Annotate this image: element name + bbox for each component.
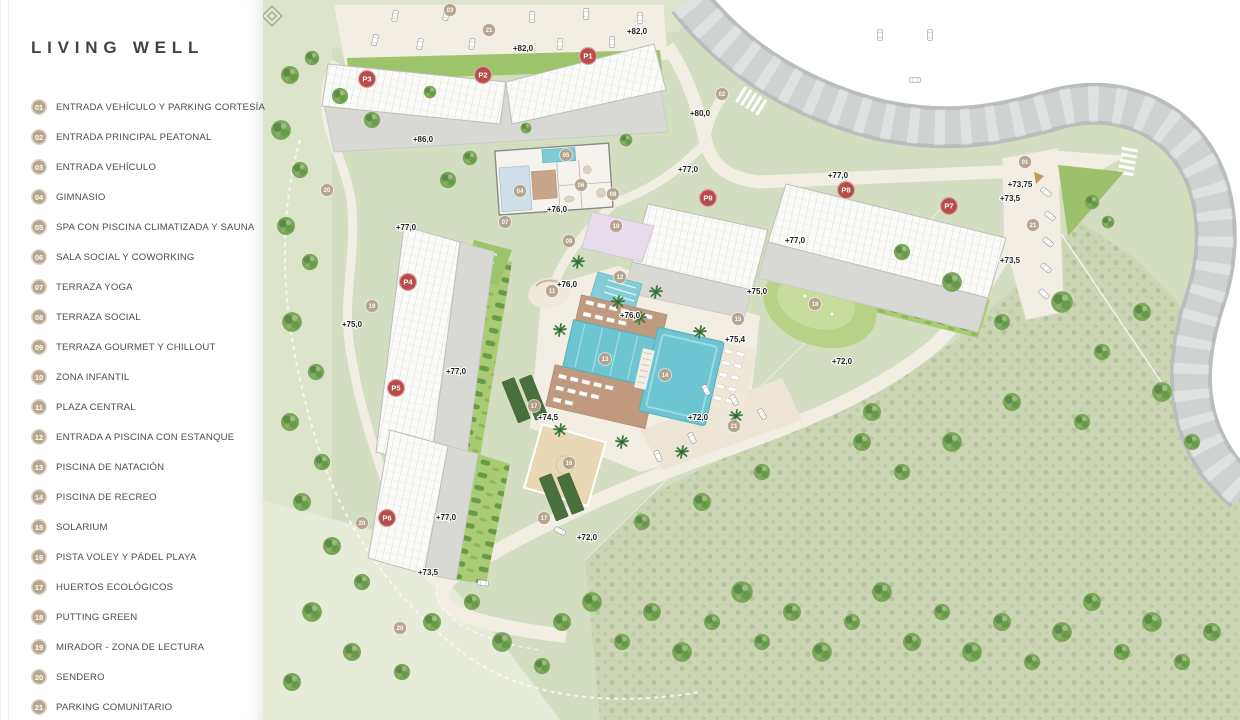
tree-icon [894, 244, 910, 260]
tree-icon [582, 592, 602, 612]
elevation-label: +72,0 [577, 533, 598, 542]
building-marker-P1: P1 [580, 48, 597, 65]
svg-text:13: 13 [602, 357, 609, 363]
svg-text:P4: P4 [403, 278, 413, 287]
elevation-label: +73,5 [418, 568, 439, 577]
elevation-label: +82,0 [627, 27, 648, 36]
car-icon [637, 13, 642, 24]
svg-text:18: 18 [812, 302, 819, 308]
svg-text:P6: P6 [382, 514, 391, 523]
legend-item-number: 02 [31, 129, 47, 145]
svg-text:17: 17 [531, 404, 538, 410]
legend-item: 01ENTRADA VEHÍCULO Y PARKING CORTESÍA [31, 92, 265, 122]
tree-icon [812, 642, 832, 662]
elevation-label: +80,0 [690, 109, 711, 118]
elevation-label: +77,0 [678, 165, 699, 174]
poi-marker-21: 21 [728, 420, 741, 433]
svg-text:03: 03 [447, 8, 454, 14]
poi-marker-16: 16 [563, 457, 576, 470]
legend-item-number: 12 [31, 429, 47, 445]
legend-item: 16PISTA VOLEY Y PÁDEL PLAYA [31, 542, 265, 572]
legend-item-number: 13 [31, 459, 47, 475]
tree-icon [293, 493, 311, 511]
poi-marker-20: 20 [356, 517, 369, 530]
elevation-label: +77,0 [396, 223, 417, 232]
svg-text:19: 19 [369, 304, 376, 310]
tree-icon [853, 433, 871, 451]
legend-item: 02ENTRADA PRINCIPAL PEATONAL [31, 122, 265, 152]
poi-marker-14: 14 [659, 369, 672, 382]
poi-marker-20: 20 [321, 184, 334, 197]
elevation-label: +77,0 [828, 171, 849, 180]
legend-item-number: 18 [31, 609, 47, 625]
svg-text:20: 20 [359, 521, 366, 527]
car-icon [557, 38, 563, 49]
svg-text:07: 07 [502, 220, 509, 226]
poi-marker-18: 18 [809, 298, 822, 311]
tree-icon [693, 493, 711, 511]
tree-icon [308, 364, 324, 380]
tree-icon [903, 633, 921, 651]
poi-marker-03: 03 [444, 4, 457, 17]
legend-item-number: 08 [31, 309, 47, 325]
tree-icon [553, 613, 571, 631]
elevation-label: +82,0 [513, 44, 534, 53]
legend-item: 05SPA CON PISCINA CLIMATIZADA Y SAUNA [31, 212, 265, 242]
tree-icon [283, 673, 301, 691]
tree-icon [942, 432, 962, 452]
elevation-label: +72,0 [832, 357, 853, 366]
building-marker-P8: P8 [838, 182, 855, 199]
tree-icon [844, 614, 860, 630]
legend-item-number: 10 [31, 369, 47, 385]
tree-icon [1024, 654, 1040, 670]
legend-item-label: ENTRADA PRINCIPAL PEATONAL [56, 132, 212, 143]
tree-icon [894, 464, 910, 480]
tree-icon [1052, 622, 1072, 642]
palm-icon [572, 256, 584, 268]
tree-icon [704, 614, 720, 630]
poi-marker-01: 01 [1019, 156, 1032, 169]
elevation-label: +76,0 [547, 205, 568, 214]
tree-icon [942, 272, 962, 292]
brand-logo: LIVING WELL [31, 38, 204, 58]
car-icon [927, 30, 932, 41]
tree-icon [962, 642, 982, 662]
building-marker-P2: P2 [475, 67, 492, 84]
legend-item-label: PISCINA DE RECREO [56, 492, 157, 503]
tree-icon [281, 413, 299, 431]
building-marker-P9: P9 [700, 190, 717, 207]
svg-text:06: 06 [578, 183, 585, 189]
legend-item-label: ZONA INFANTIL [56, 372, 129, 383]
poi-marker-21: 21 [483, 24, 496, 37]
tree-icon [440, 172, 456, 188]
svg-text:20: 20 [397, 626, 404, 632]
svg-text:21: 21 [486, 28, 493, 34]
poi-marker-04: 04 [514, 185, 527, 198]
legend-item-number: 03 [31, 159, 47, 175]
elevation-label: +76,0 [557, 280, 578, 289]
tree-icon [1094, 344, 1110, 360]
legend-item-number: 11 [31, 399, 47, 415]
palm-icon [616, 436, 628, 448]
poi-marker-09: 09 [563, 235, 576, 248]
tree-icon [1085, 195, 1099, 209]
legend-item: 07TERRAZA YOGA [31, 272, 265, 302]
tree-icon [394, 664, 410, 680]
tree-icon [1203, 623, 1221, 641]
poi-marker-15: 15 [732, 313, 745, 326]
elevation-label: +73,75 [1008, 180, 1033, 189]
tree-icon [1133, 303, 1151, 321]
legend-item-label: ENTRADA A PISCINA CON ESTANQUE [56, 432, 234, 443]
legend-item-label: TERRAZA GOURMET Y CHILLOUT [56, 342, 216, 353]
tree-icon [754, 634, 770, 650]
legend-item: 12ENTRADA A PISCINA CON ESTANQUE [31, 422, 265, 452]
svg-text:08: 08 [610, 192, 617, 198]
legend-item: 06SALA SOCIAL Y COWORKING [31, 242, 265, 272]
tree-icon [783, 603, 801, 621]
palm-icon [612, 296, 624, 308]
tree-icon [492, 632, 512, 652]
poi-marker-21: 21 [1027, 219, 1040, 232]
tree-icon [292, 162, 308, 178]
palm-icon [694, 326, 706, 338]
svg-text:P5: P5 [391, 384, 400, 393]
svg-text:P9: P9 [703, 194, 712, 203]
car-icon [910, 77, 921, 82]
tree-icon [1174, 654, 1190, 670]
legend-item-number: 09 [31, 339, 47, 355]
svg-text:P7: P7 [944, 202, 953, 211]
legend-item-number: 16 [31, 549, 47, 565]
svg-text:14: 14 [662, 373, 669, 379]
tree-icon [863, 403, 881, 421]
poi-marker-13: 13 [599, 353, 612, 366]
elevation-label: +76,0 [620, 311, 641, 320]
poi-marker-07: 07 [499, 216, 512, 229]
legend-item-label: SALA SOCIAL Y COWORKING [56, 252, 195, 263]
poi-marker-05: 05 [560, 149, 573, 162]
svg-text:02: 02 [719, 92, 726, 98]
tree-icon [271, 120, 291, 140]
tree-icon [423, 613, 441, 631]
svg-text:P2: P2 [478, 71, 487, 80]
tree-icon [993, 613, 1011, 631]
poi-marker-02: 02 [716, 88, 729, 101]
tree-icon [521, 123, 532, 134]
elevation-label: +75,4 [725, 335, 746, 344]
palm-icon [554, 424, 566, 436]
legend-item-label: PARKING COMUNITARIO [56, 702, 172, 713]
svg-text:04: 04 [517, 189, 524, 195]
svg-text:16: 16 [566, 461, 573, 467]
elevation-label: +77,0 [446, 367, 467, 376]
legend-item-label: ENTRADA VEHÍCULO [56, 162, 156, 173]
legend-item-number: 05 [31, 219, 47, 235]
legend-item-label: SENDERO [56, 672, 105, 683]
tree-icon [281, 66, 299, 84]
tree-icon [354, 574, 370, 590]
tree-icon [934, 604, 950, 620]
legend-item-number: 21 [31, 699, 47, 715]
poi-marker-19: 19 [366, 300, 379, 313]
tree-icon [364, 112, 380, 128]
svg-text:21: 21 [731, 424, 738, 430]
legend-item-number: 04 [31, 189, 47, 205]
legend-item-label: PUTTING GREEN [56, 612, 137, 623]
tree-icon [1003, 393, 1021, 411]
legend-item: 09TERRAZA GOURMET Y CHILLOUT [31, 332, 265, 362]
tree-icon [277, 217, 295, 235]
legend-item-number: 20 [31, 669, 47, 685]
tree-icon [614, 634, 630, 650]
svg-text:05: 05 [563, 153, 570, 159]
tree-icon [754, 464, 770, 480]
svg-text:01: 01 [1022, 160, 1029, 166]
elevation-label: +73,5 [1000, 256, 1021, 265]
tree-icon [634, 514, 650, 530]
legend-item-label: ENTRADA VEHÍCULO Y PARKING CORTESÍA [56, 102, 265, 113]
svg-text:20: 20 [324, 188, 331, 194]
elevation-label: +73,5 [1000, 194, 1021, 203]
legend-item-number: 14 [31, 489, 47, 505]
legend-item: 21PARKING COMUNITARIO [31, 692, 265, 720]
svg-text:09: 09 [566, 239, 573, 245]
elevation-label: +77,0 [785, 236, 806, 245]
legend-panel: LIVING WELL 01ENTRADA VEHÍCULO Y PARKING… [0, 0, 263, 720]
tree-icon [282, 312, 302, 332]
legend-item: 11PLAZA CENTRAL [31, 392, 265, 422]
building-marker-P4: P4 [400, 274, 417, 291]
tree-icon [620, 134, 633, 147]
tree-icon [1184, 434, 1200, 450]
poi-marker-06: 06 [575, 179, 588, 192]
palm-icon [676, 446, 688, 458]
building-marker-P5: P5 [388, 380, 405, 397]
tree-icon [731, 581, 753, 603]
elevation-label: +74,5 [538, 413, 559, 422]
palm-icon [554, 324, 566, 336]
tree-icon [305, 51, 319, 65]
legend-item-number: 06 [31, 249, 47, 265]
poi-marker-12: 12 [614, 271, 627, 284]
poi-marker-17: 17 [538, 512, 551, 525]
legend-list: 01ENTRADA VEHÍCULO Y PARKING CORTESÍA02E… [31, 92, 265, 720]
tree-icon [1074, 414, 1090, 430]
legend-item-label: TERRAZA YOGA [56, 282, 133, 293]
tree-icon [314, 454, 330, 470]
svg-text:17: 17 [541, 516, 548, 522]
tree-icon [1142, 612, 1162, 632]
tree-icon [672, 642, 692, 662]
legend-item: 13PISCINA DE NATACIÓN [31, 452, 265, 482]
legend-item: 14PISCINA DE RECREO [31, 482, 265, 512]
tree-icon [343, 643, 361, 661]
poi-marker-20: 20 [394, 622, 407, 635]
svg-text:P3: P3 [362, 75, 371, 84]
tree-icon [1051, 291, 1073, 313]
legend-item: 15SOLARIUM [31, 512, 265, 542]
legend-item-number: 15 [31, 519, 47, 535]
legend-item: 20SENDERO [31, 662, 265, 692]
tree-icon [1083, 593, 1101, 611]
car-icon [877, 30, 882, 41]
tree-icon [994, 314, 1010, 330]
tree-icon [1102, 216, 1115, 229]
tree-icon [463, 151, 477, 165]
tree-icon [534, 658, 550, 674]
poi-marker-17: 17 [528, 400, 541, 413]
legend-item-label: PISTA VOLEY Y PÁDEL PLAYA [56, 552, 196, 563]
building-marker-P3: P3 [359, 71, 376, 88]
legend-item: 19MIRADOR - ZONA DE LECTURA [31, 632, 265, 662]
car-icon [609, 36, 615, 47]
elevation-label: +75,0 [342, 320, 363, 329]
panel-edge-line [8, 0, 9, 720]
legend-item: 17HUERTOS ECOLÓGICOS [31, 572, 265, 602]
car-icon [583, 8, 589, 19]
legend-item-label: HUERTOS ECOLÓGICOS [56, 582, 173, 593]
tree-icon [302, 254, 318, 270]
legend-item-number: 19 [31, 639, 47, 655]
legend-item-number: 17 [31, 579, 47, 595]
svg-text:12: 12 [617, 275, 624, 281]
legend-item: 18PUTTING GREEN [31, 602, 265, 632]
legend-item-number: 01 [31, 99, 47, 115]
legend-item: 08TERRAZA SOCIAL [31, 302, 265, 332]
elevation-label: +86,0 [413, 135, 434, 144]
svg-text:15: 15 [735, 317, 742, 323]
tree-icon [872, 582, 892, 602]
legend-item-label: SOLARIUM [56, 522, 108, 533]
elevation-label: +75,0 [747, 287, 768, 296]
legend-item-label: PISCINA DE NATACIÓN [56, 462, 164, 473]
legend-item: 04GIMNASIO [31, 182, 265, 212]
tree-icon [464, 594, 480, 610]
legend-item: 03ENTRADA VEHÍCULO [31, 152, 265, 182]
poi-marker-11: 11 [546, 285, 559, 298]
legend-item: 10ZONA INFANTIL [31, 362, 265, 392]
svg-text:P1: P1 [583, 52, 592, 61]
building-marker-P6: P6 [379, 510, 396, 527]
poi-marker-10: 10 [610, 220, 623, 233]
poi-marker-08: 08 [607, 188, 620, 201]
tree-icon [1114, 644, 1130, 660]
tree-icon [643, 603, 661, 621]
svg-text:11: 11 [549, 289, 556, 295]
legend-item-label: GIMNASIO [56, 192, 106, 203]
elevation-label: +77,0 [436, 513, 457, 522]
svg-text:21: 21 [1030, 223, 1037, 229]
building-marker-P7: P7 [941, 198, 958, 215]
tree-icon [1152, 382, 1172, 402]
elevation-label: +72,0 [688, 413, 709, 422]
tree-icon [302, 602, 322, 622]
legend-item-label: TERRAZA SOCIAL [56, 312, 141, 323]
tree-icon [323, 537, 341, 555]
car-icon [529, 11, 535, 22]
siteplan-page: +82,0+82,0+86,0+80,0+77,0+77,0+73,75+73,… [0, 0, 1240, 720]
legend-item-label: PLAZA CENTRAL [56, 402, 136, 413]
legend-item-label: SPA CON PISCINA CLIMATIZADA Y SAUNA [56, 222, 254, 233]
tree-icon [332, 88, 348, 104]
legend-item-number: 07 [31, 279, 47, 295]
svg-text:P8: P8 [841, 186, 850, 195]
svg-text:10: 10 [613, 224, 620, 230]
legend-item-label: MIRADOR - ZONA DE LECTURA [56, 642, 204, 653]
palm-icon [650, 286, 662, 298]
tree-icon [424, 86, 437, 99]
